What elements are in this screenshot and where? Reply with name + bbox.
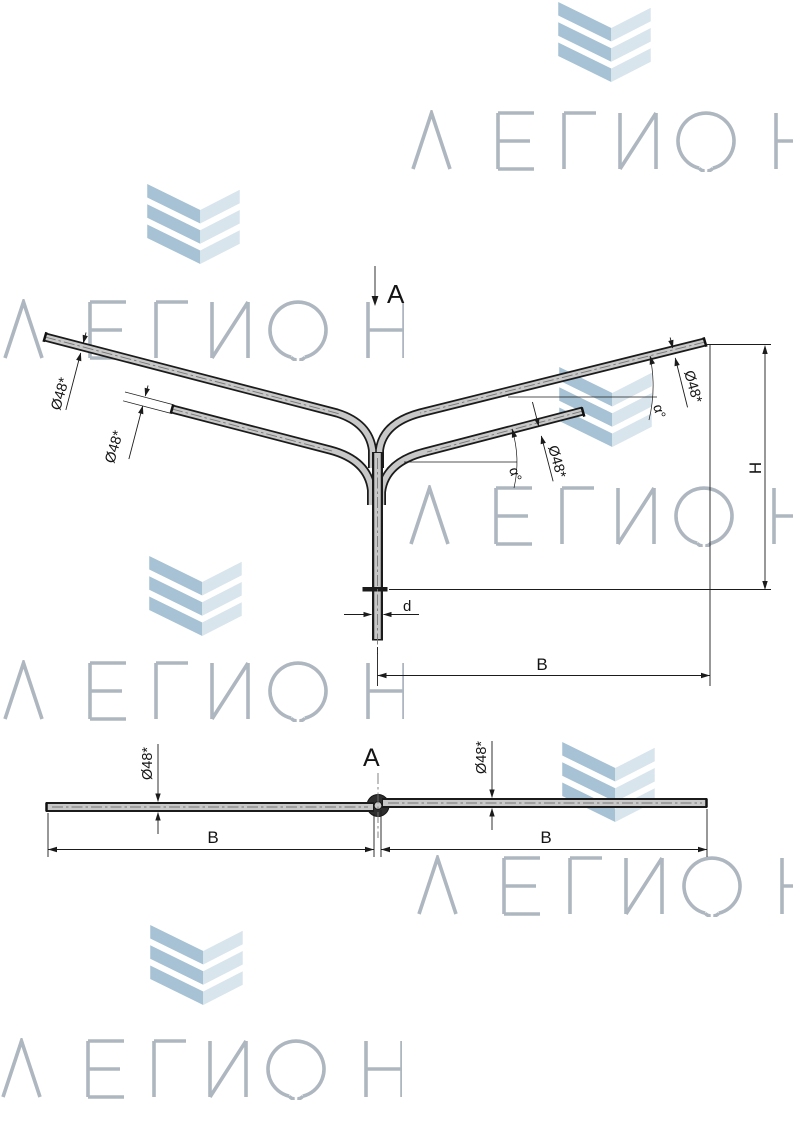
angle-label: α°	[506, 465, 525, 483]
technical-drawing: A	[0, 0, 793, 1123]
dim-height: H	[389, 345, 771, 687]
drawing-sheet: A	[0, 0, 793, 1123]
span-label: B	[540, 828, 551, 847]
top-right-arm	[382, 799, 707, 808]
section-arrow: A	[372, 266, 405, 309]
angle-label: α°	[650, 402, 669, 420]
top-left-arm	[46, 803, 374, 812]
front-view: A	[44, 266, 771, 686]
tube-end-caps	[44, 332, 707, 416]
span-label: B	[536, 655, 547, 674]
section-arrow-label: A	[387, 279, 405, 309]
diameter-label: Ø48*	[48, 376, 73, 413]
diameter-label: Ø48*	[102, 429, 127, 466]
height-label: H	[746, 462, 765, 474]
dim-span-top-left: B	[48, 813, 374, 857]
dim-span-top-right: B	[381, 809, 707, 857]
upper-arms	[45, 337, 705, 468]
diameter-label: Ø48*	[680, 369, 705, 406]
dim-diameter-top-left: Ø48*	[140, 744, 161, 834]
dim-diameter-top-right: Ø48*	[474, 741, 495, 830]
dim-diameter-lower-left: Ø48*	[102, 385, 173, 465]
post-diameter-label: d	[403, 598, 411, 615]
diameter-label: Ø48*	[140, 747, 156, 780]
span-label: B	[207, 828, 218, 847]
post-collar	[363, 587, 388, 592]
view-a-label: A	[363, 744, 380, 772]
dim-span-front: B	[378, 647, 711, 686]
diameter-label: Ø48*	[474, 741, 490, 774]
top-view-a: A	[46, 741, 707, 857]
